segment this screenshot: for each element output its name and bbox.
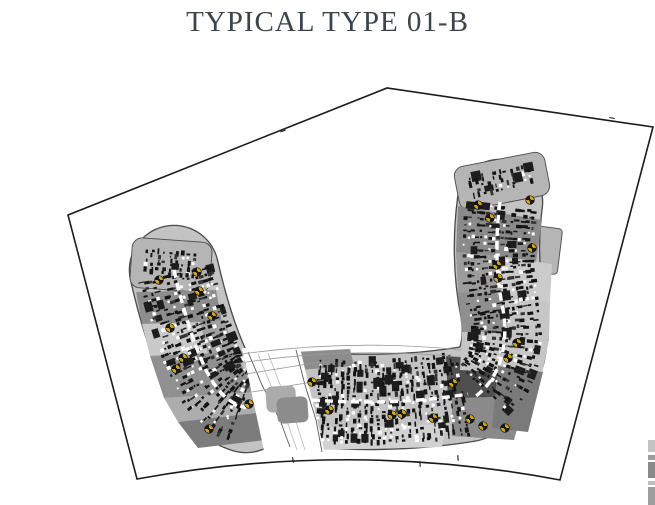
stair-core-symbol	[325, 406, 334, 415]
stair-core-symbol	[179, 354, 188, 363]
canopy-roof	[276, 396, 309, 424]
stair-core-symbol	[449, 379, 458, 388]
stair-core-symbol	[193, 268, 202, 277]
edge-fragment-block	[648, 462, 655, 478]
stair-core-symbol	[466, 415, 475, 424]
stair-core-symbol	[528, 244, 537, 253]
boundary-tick	[609, 118, 615, 119]
stair-core-symbol	[155, 276, 164, 285]
stair-core-symbol	[166, 324, 175, 333]
edge-fragment-block	[648, 440, 655, 452]
stair-core-symbol	[429, 414, 438, 423]
stair-core-symbol	[479, 422, 488, 431]
stair-core-symbol	[195, 287, 204, 296]
stair-core-symbol	[172, 365, 181, 374]
stair-core-symbol	[494, 274, 503, 283]
stair-core-symbol	[501, 424, 510, 433]
stair-core-symbol	[245, 400, 254, 409]
edge-fragment	[648, 440, 655, 505]
stair-core-symbol	[308, 378, 317, 387]
edge-fragment-block	[648, 455, 655, 460]
stair-core-symbol	[474, 201, 483, 210]
floor-plan-canvas	[0, 0, 655, 505]
stair-core-symbol	[205, 425, 214, 434]
stair-core-symbol	[398, 410, 407, 419]
edge-fragment-block	[648, 481, 655, 485]
edge-fragment-block	[648, 487, 655, 505]
stair-core-symbol	[486, 214, 495, 223]
stair-core-symbol	[493, 261, 502, 270]
stair-core-symbol	[388, 411, 397, 420]
stair-core-symbol	[208, 312, 217, 321]
stair-core-symbol	[504, 354, 513, 363]
stair-core-symbol	[526, 196, 535, 205]
stair-core-symbol	[513, 339, 522, 348]
